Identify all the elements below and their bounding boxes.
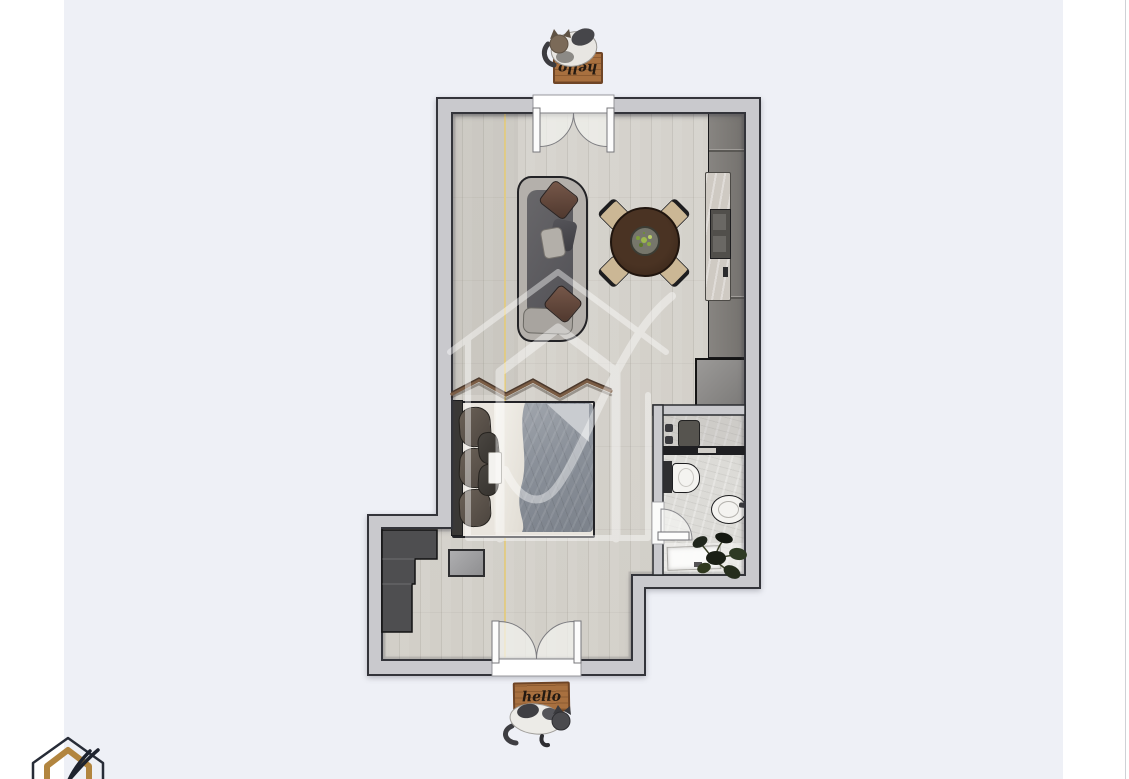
cat-bottom bbox=[505, 701, 571, 745]
cat-paw bbox=[541, 736, 548, 745]
floorplan-page: { "scene": { "description": "top-down 3D… bbox=[0, 0, 1129, 779]
bathroom-door bbox=[652, 502, 692, 544]
exterior-walls bbox=[368, 98, 760, 675]
door-swing-arc bbox=[574, 113, 608, 147]
cat-top bbox=[544, 25, 600, 70]
door-swing-arc bbox=[537, 622, 575, 660]
door-jamb bbox=[492, 621, 499, 663]
bathroom-door-leaf bbox=[658, 532, 689, 540]
door-swing-arc bbox=[540, 113, 574, 147]
divider-towel bbox=[698, 448, 716, 453]
door-jamb bbox=[607, 108, 614, 152]
door-threshold-top bbox=[533, 95, 614, 114]
zigzag-wall-shelf bbox=[452, 378, 611, 400]
door-jamb bbox=[533, 108, 540, 152]
cat-head bbox=[550, 35, 568, 53]
door-threshold-bottom bbox=[492, 658, 581, 676]
watermark-house-logo bbox=[450, 272, 672, 538]
door-jamb bbox=[574, 621, 581, 663]
brand-logo bbox=[33, 738, 103, 779]
entry-door-top bbox=[533, 95, 614, 152]
cat-tail bbox=[505, 726, 516, 743]
entry-door-bottom bbox=[492, 621, 581, 676]
wardrobe bbox=[382, 530, 437, 632]
plan-overlay bbox=[0, 0, 1129, 779]
door-swing-arc bbox=[499, 622, 537, 660]
cat-head bbox=[552, 712, 570, 730]
